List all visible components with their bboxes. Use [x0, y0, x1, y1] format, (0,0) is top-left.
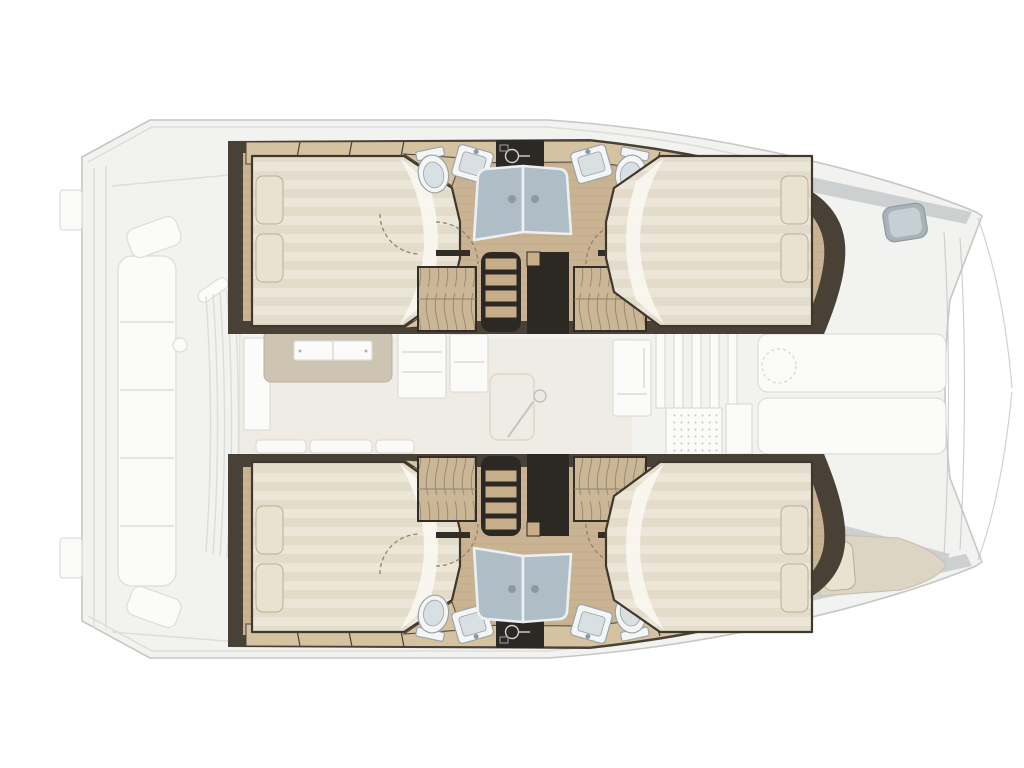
catamaran-floor-plan [0, 0, 1024, 768]
wardrobe [418, 267, 476, 331]
saloon-cabinets [398, 330, 488, 398]
galley-counter [264, 330, 392, 382]
starboard-hull-interior [228, 454, 845, 649]
fridge-cabinet [613, 340, 651, 416]
settee-cushions [256, 440, 414, 453]
companionway-stairs [481, 252, 521, 332]
deck-mat [666, 408, 722, 456]
companionway-void [527, 252, 569, 334]
forward-bed-pillow [781, 176, 808, 224]
catamaran-floor-plan-page [0, 0, 1024, 768]
forward-bed-pillow [781, 234, 808, 282]
deck-panel [726, 404, 752, 454]
aft-bed-pillow [256, 234, 283, 282]
port-hull-interior [228, 139, 845, 334]
door-stub [436, 250, 470, 256]
bow-hatch-icon [882, 202, 929, 243]
saloon [240, 330, 632, 454]
cockpit-table-base [173, 338, 187, 352]
shower-enclosure [474, 166, 571, 240]
cockpit-bench [118, 256, 176, 586]
forward-cabin-double-berth [606, 156, 812, 326]
aft-bed-pillow [256, 176, 283, 224]
